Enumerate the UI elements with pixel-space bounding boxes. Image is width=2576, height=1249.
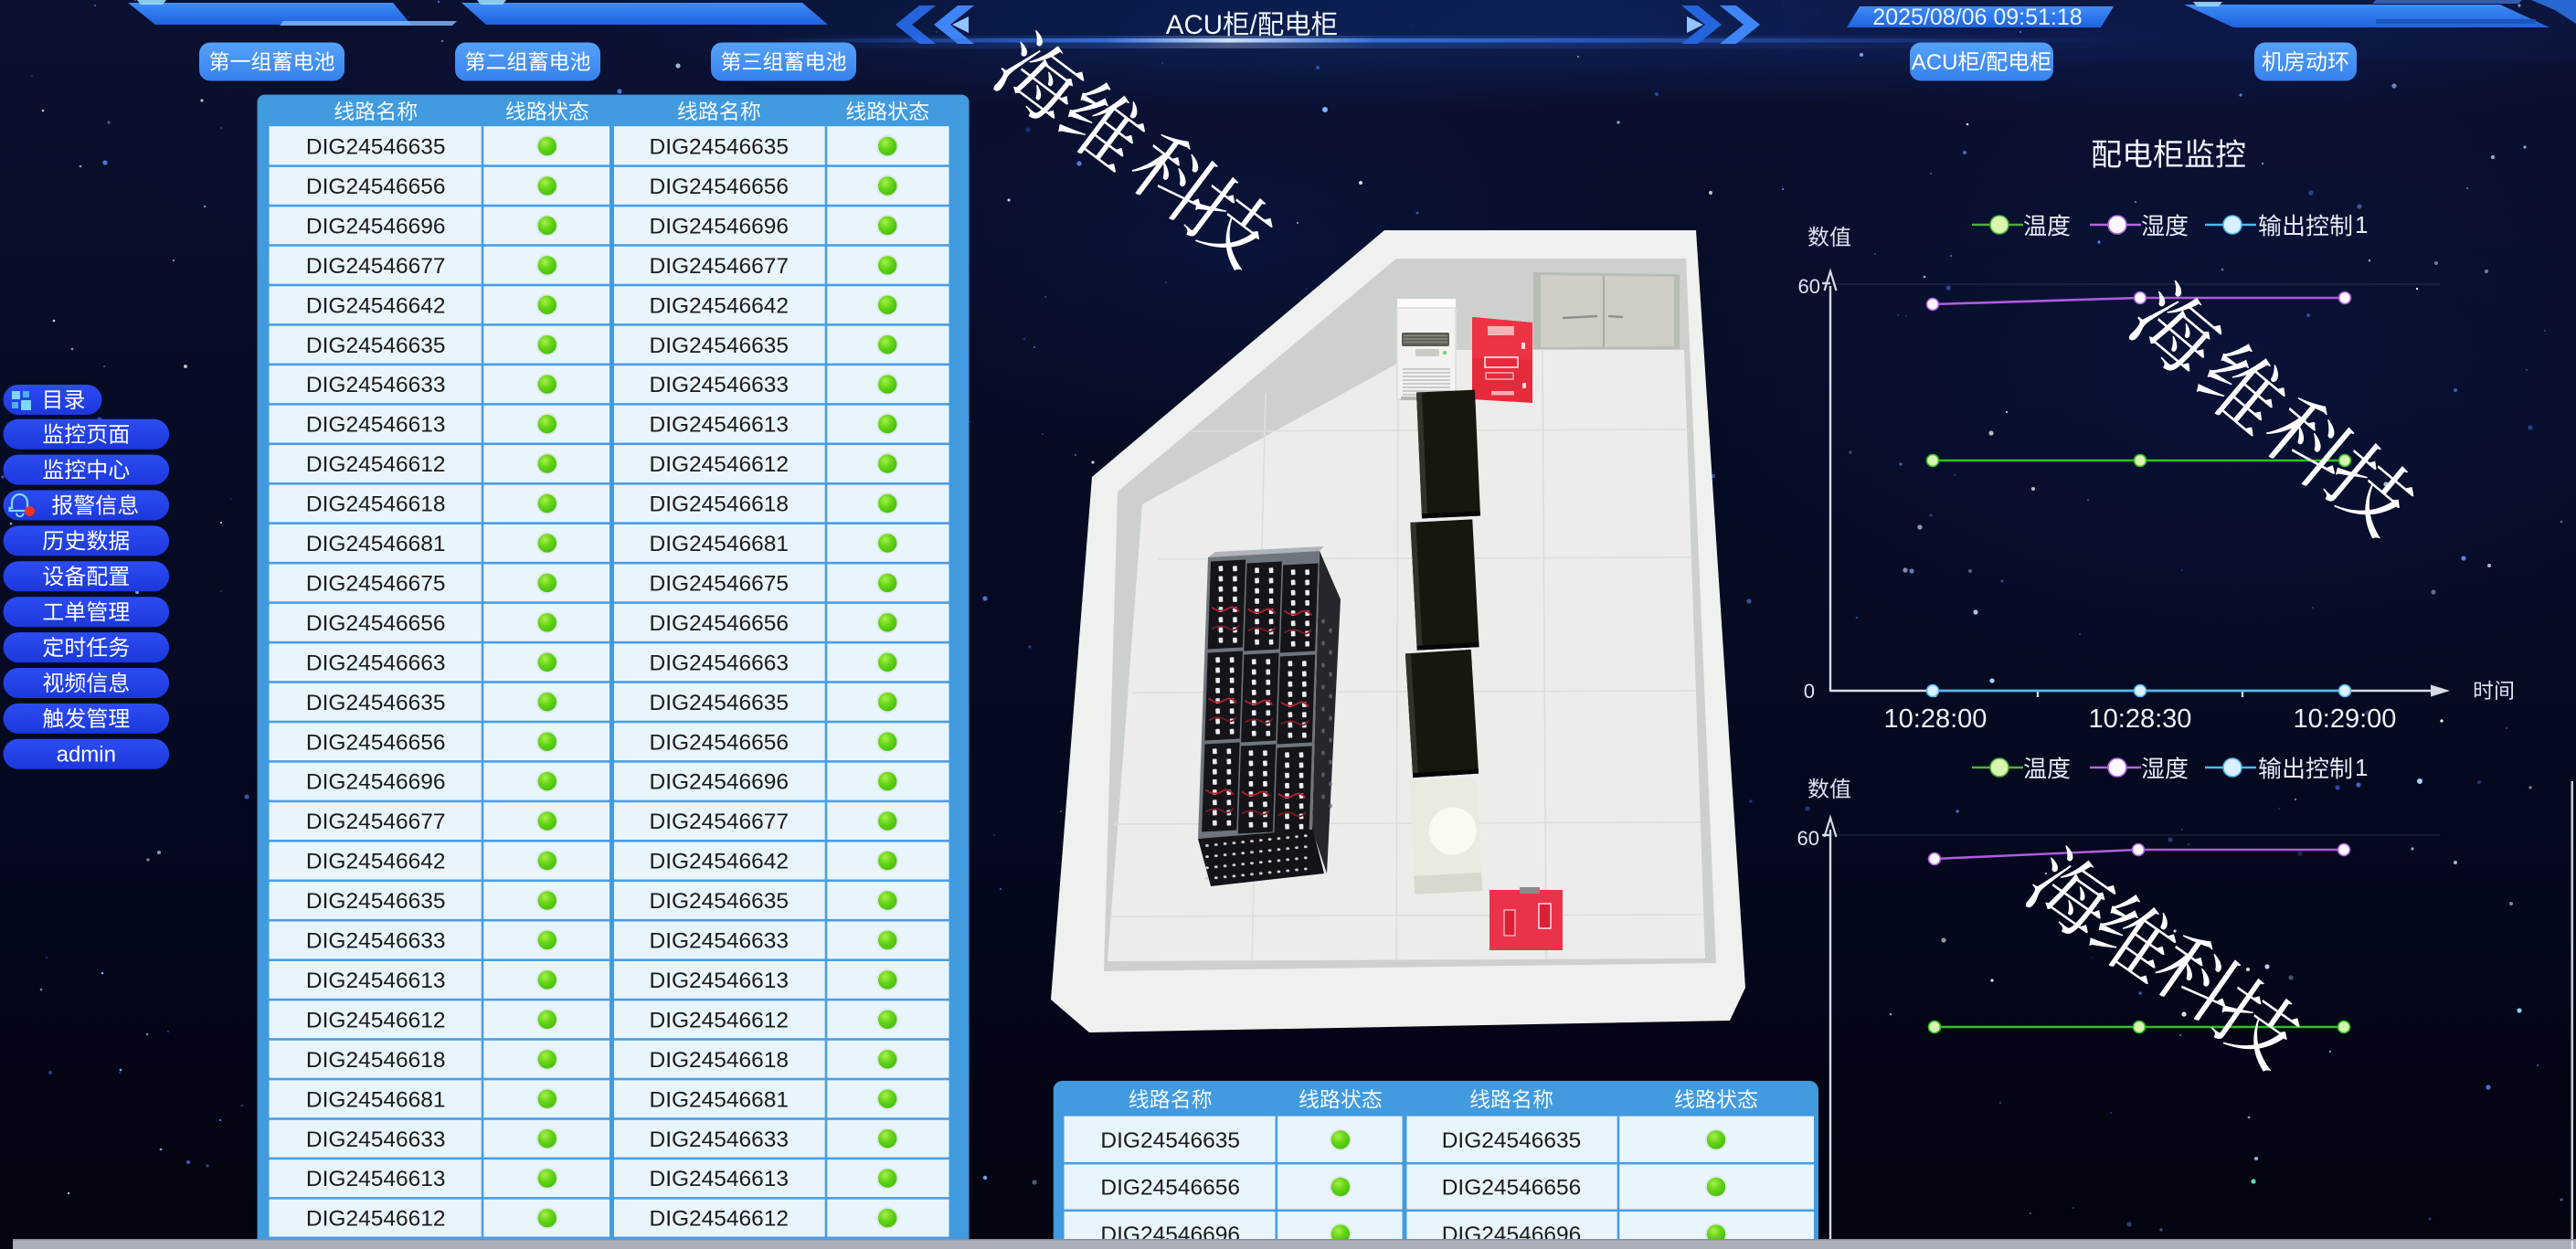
svg-text:60: 60 — [1798, 275, 1820, 298]
svg-text:DIG24546635: DIG24546635 — [650, 889, 790, 914]
svg-text:DIG24546663: DIG24546663 — [306, 651, 446, 675]
svg-text:DIG24546618: DIG24546618 — [650, 492, 790, 517]
svg-text:DIG24546613: DIG24546613 — [306, 969, 446, 993]
svg-text:DIG24546635: DIG24546635 — [306, 889, 446, 914]
svg-text:DIG24546635: DIG24546635 — [306, 135, 446, 160]
svg-text:/: / — [1250, 10, 1258, 40]
svg-text:DIG24546677: DIG24546677 — [306, 254, 446, 279]
svg-text:DIG24546612: DIG24546612 — [650, 452, 790, 477]
svg-text:10:29:00: 10:29:00 — [2294, 704, 2397, 734]
svg-text:DIG24546635: DIG24546635 — [306, 691, 446, 715]
svg-text:DIG24546696: DIG24546696 — [650, 770, 790, 795]
svg-text:DIG24546656: DIG24546656 — [1442, 1176, 1582, 1201]
svg-text:DIG24546656: DIG24546656 — [650, 175, 790, 199]
svg-text:DIG24546675: DIG24546675 — [650, 572, 790, 597]
svg-text:DIG24546675: DIG24546675 — [306, 572, 446, 597]
svg-text:DIG24546633: DIG24546633 — [306, 373, 446, 397]
svg-text:1: 1 — [2355, 754, 2368, 781]
svg-text:admin: admin — [57, 742, 116, 767]
svg-text:DIG24546696: DIG24546696 — [306, 770, 446, 795]
svg-text:DIG24546656: DIG24546656 — [306, 175, 446, 199]
svg-text:DIG24546681: DIG24546681 — [306, 1087, 446, 1112]
svg-text:10:28:30: 10:28:30 — [2089, 704, 2192, 734]
svg-text:DIG24546656: DIG24546656 — [1100, 1176, 1240, 1201]
svg-text:ACU: ACU — [1166, 10, 1223, 40]
svg-text:DIG24546656: DIG24546656 — [650, 611, 790, 636]
svg-text:DIG24546642: DIG24546642 — [650, 850, 790, 874]
svg-text:DIG24546612: DIG24546612 — [650, 1008, 790, 1032]
svg-text:DIG24546656: DIG24546656 — [306, 730, 446, 755]
svg-text:DIG24546613: DIG24546613 — [306, 1167, 446, 1191]
svg-text:DIG24546642: DIG24546642 — [306, 850, 446, 874]
svg-text:60: 60 — [1797, 827, 1819, 850]
svg-text:DIG24546633: DIG24546633 — [650, 1127, 790, 1152]
svg-text:DIG24546677: DIG24546677 — [306, 810, 446, 834]
svg-text:DIG24546635: DIG24546635 — [1442, 1128, 1582, 1153]
svg-text:DIG24546633: DIG24546633 — [650, 373, 790, 397]
svg-text:DIG24546633: DIG24546633 — [306, 1127, 446, 1152]
svg-text:DIG24546635: DIG24546635 — [1100, 1128, 1240, 1153]
svg-text:DIG24546677: DIG24546677 — [650, 810, 790, 834]
svg-text:DIG24546612: DIG24546612 — [306, 1008, 446, 1032]
svg-text:DIG24546663: DIG24546663 — [650, 651, 790, 675]
svg-text:DIG24546681: DIG24546681 — [650, 532, 790, 556]
svg-text:DIG24546696: DIG24546696 — [650, 214, 790, 238]
svg-text:DIG24546633: DIG24546633 — [650, 929, 790, 954]
svg-text:DIG24546613: DIG24546613 — [306, 413, 446, 438]
svg-text:DIG24546613: DIG24546613 — [650, 413, 790, 438]
svg-text:DIG24546642: DIG24546642 — [650, 293, 790, 318]
svg-text:DIG24546618: DIG24546618 — [650, 1048, 790, 1073]
svg-text:DIG24546635: DIG24546635 — [306, 333, 446, 358]
svg-text:DIG24546635: DIG24546635 — [650, 333, 790, 358]
svg-text:/: / — [1980, 50, 1987, 75]
svg-text:DIG24546612: DIG24546612 — [650, 1207, 790, 1232]
svg-text:DIG24546613: DIG24546613 — [650, 969, 790, 993]
svg-text:DIG24546656: DIG24546656 — [650, 730, 790, 755]
svg-text:DIG24546642: DIG24546642 — [306, 293, 446, 318]
svg-text:DIG24546618: DIG24546618 — [306, 492, 446, 517]
svg-text:DIG24546613: DIG24546613 — [650, 1167, 790, 1191]
svg-text:DIG24546618: DIG24546618 — [306, 1048, 446, 1073]
svg-text:DIG24546633: DIG24546633 — [306, 929, 446, 954]
svg-text:ACU: ACU — [1912, 50, 1958, 75]
svg-text:DIG24546677: DIG24546677 — [650, 254, 790, 279]
svg-text:1: 1 — [2355, 211, 2368, 238]
svg-text:DIG24546635: DIG24546635 — [650, 691, 790, 715]
svg-text:DIG24546656: DIG24546656 — [306, 611, 446, 636]
svg-text:DIG24546696: DIG24546696 — [306, 214, 446, 238]
svg-text:DIG24546681: DIG24546681 — [306, 532, 446, 556]
svg-text:2025/08/06 09:51:18: 2025/08/06 09:51:18 — [1872, 5, 2082, 30]
svg-text:0: 0 — [1804, 680, 1815, 703]
svg-text:DIG24546612: DIG24546612 — [306, 452, 446, 477]
svg-text:DIG24546635: DIG24546635 — [650, 135, 790, 160]
svg-text:DIG24546681: DIG24546681 — [650, 1087, 790, 1112]
svg-text:10:28:00: 10:28:00 — [1884, 704, 1988, 734]
svg-text:DIG24546612: DIG24546612 — [306, 1207, 446, 1232]
